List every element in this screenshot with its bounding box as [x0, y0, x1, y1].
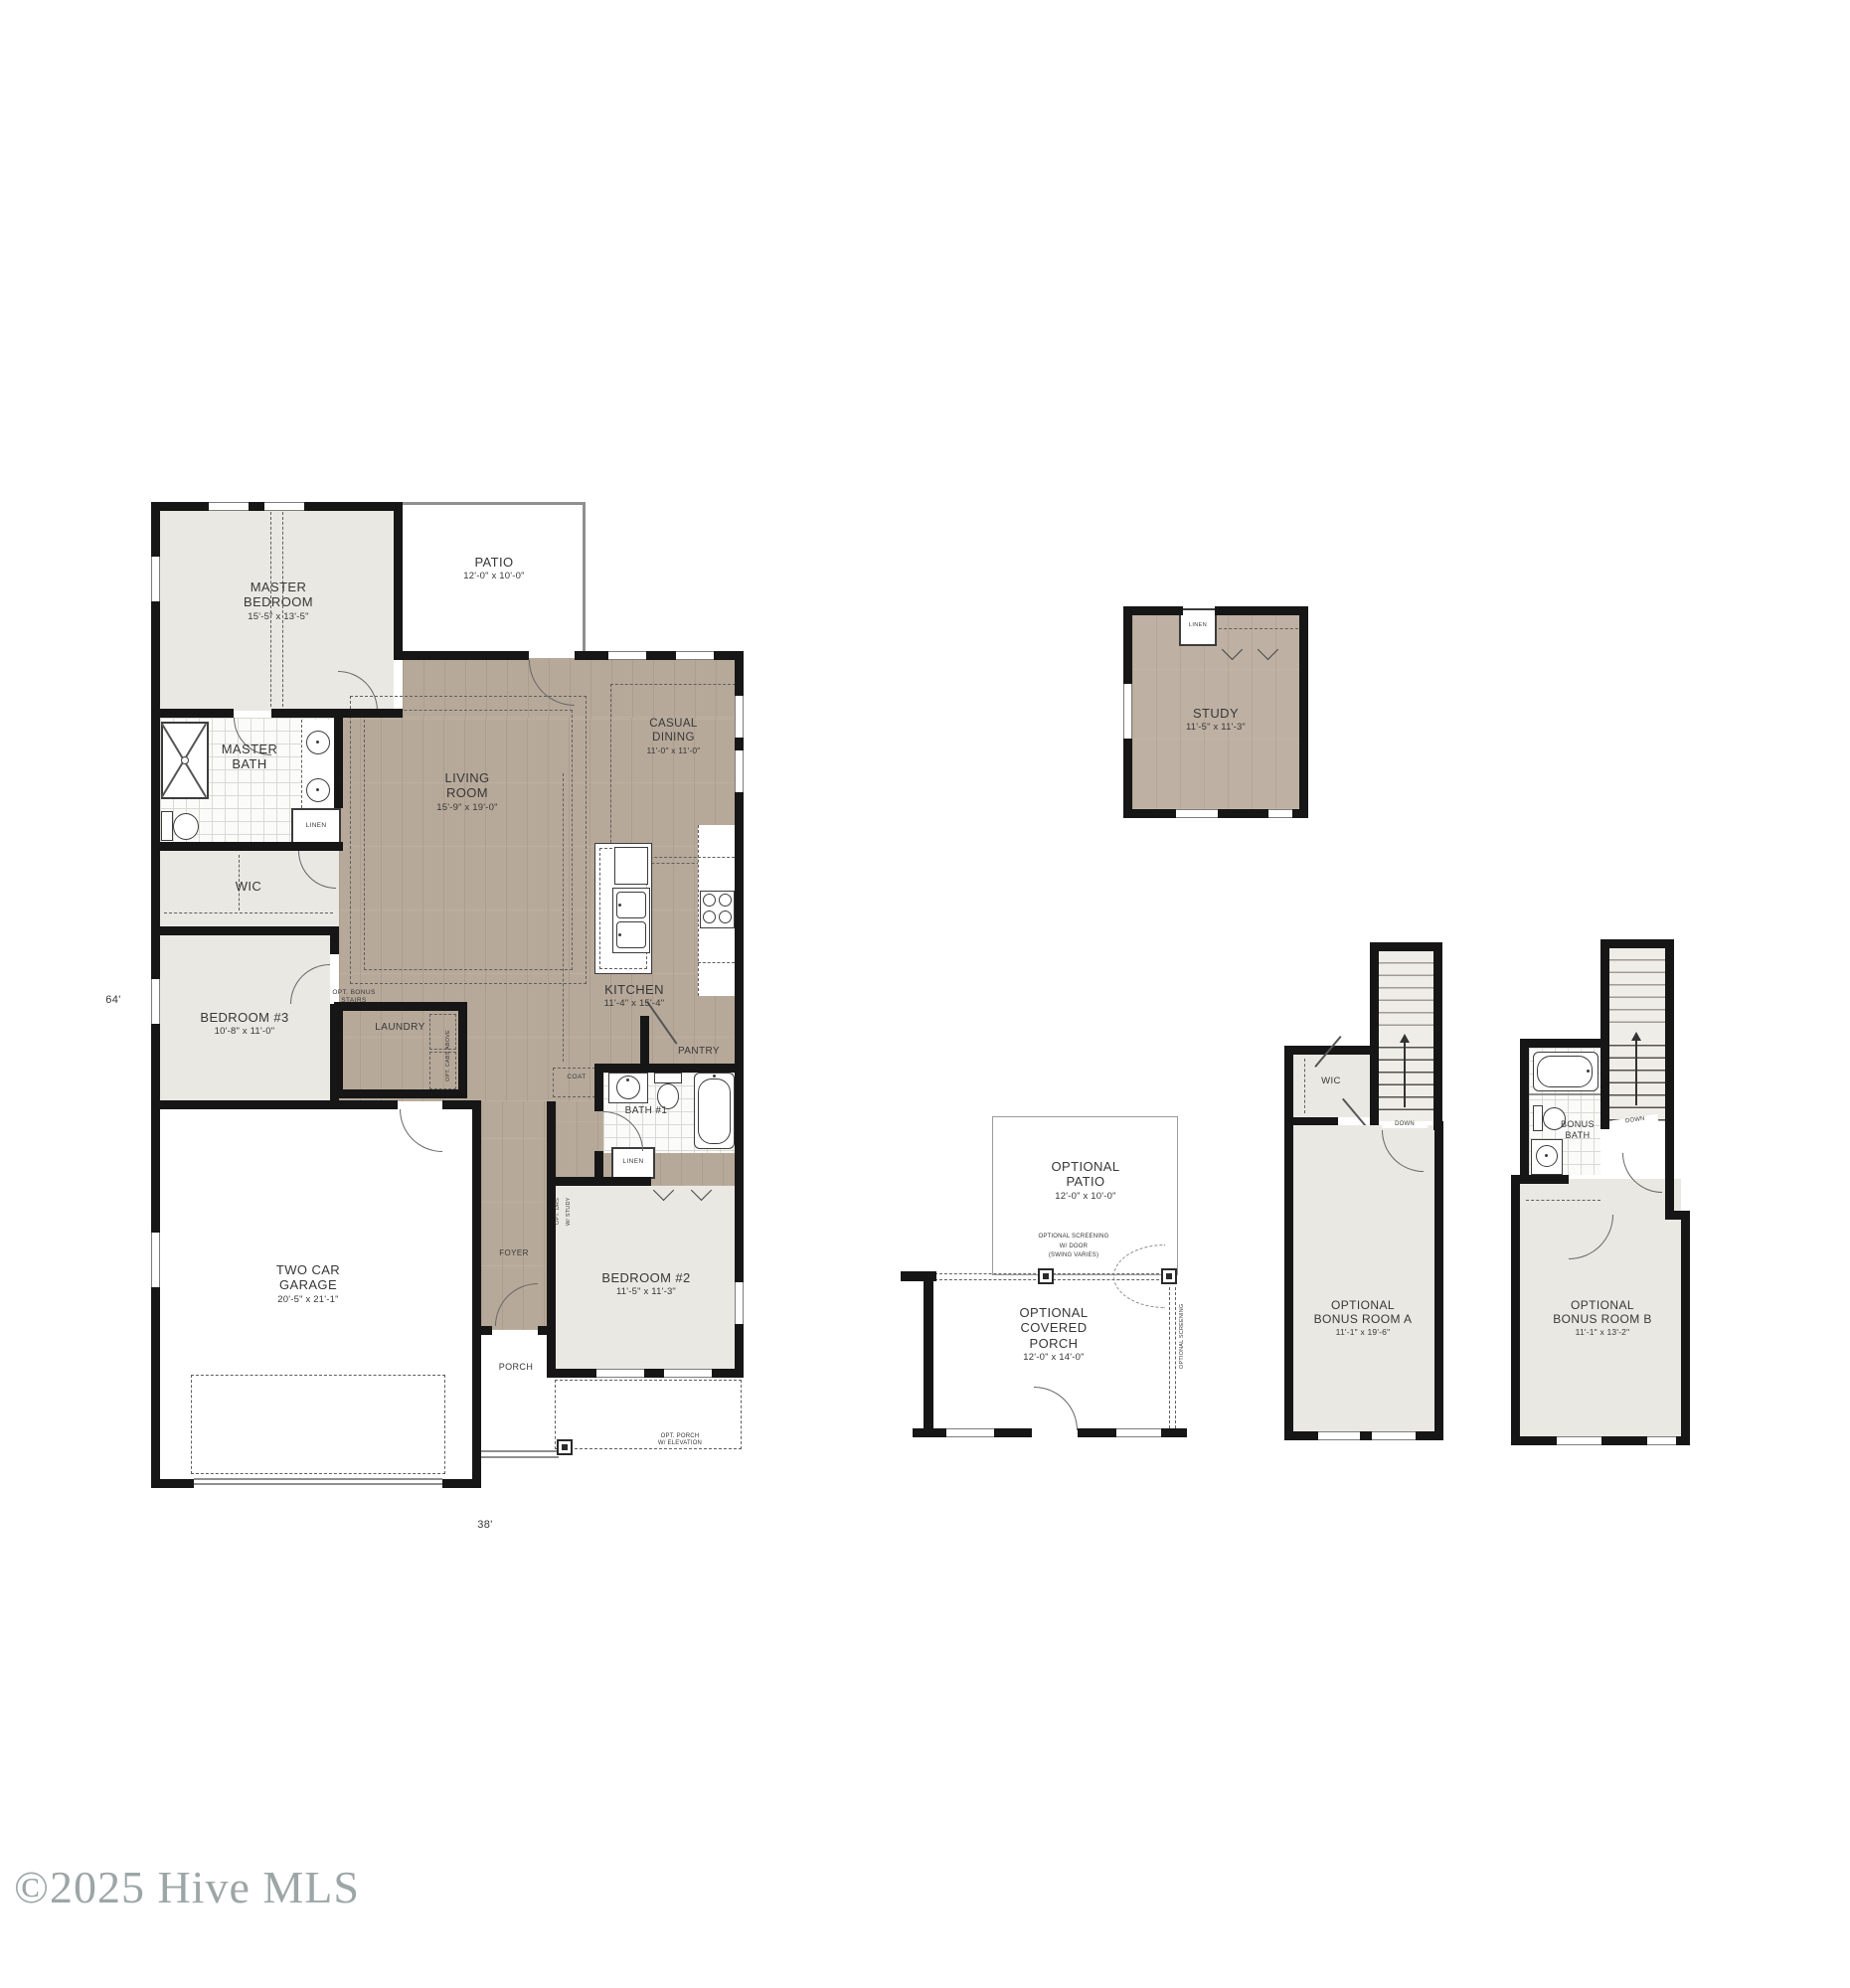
wall [394, 651, 529, 660]
window [209, 502, 249, 511]
window [608, 651, 646, 660]
patio-edge [583, 502, 586, 656]
label-garage: TWO CAR GARAGE 20'-5" x 21'-1" [224, 1262, 393, 1305]
wall [442, 1479, 481, 1488]
wall [151, 1479, 194, 1488]
porch-step [481, 1450, 559, 1452]
wall [594, 1064, 603, 1111]
wall [640, 1016, 649, 1064]
window [1557, 1436, 1601, 1445]
window [735, 1282, 744, 1324]
counter-divider [698, 857, 735, 858]
window [735, 750, 744, 792]
label-linen-master: LINEN [293, 822, 339, 830]
wall [594, 1064, 744, 1073]
window [1268, 809, 1292, 818]
study-ceiling-line [1219, 628, 1298, 629]
window [151, 557, 160, 601]
wall [1600, 939, 1609, 1129]
wall [736, 1177, 744, 1186]
tub-basin [1537, 1056, 1593, 1087]
dimension-depth: 64' [91, 994, 135, 1007]
wall [271, 709, 403, 718]
wall [1161, 1428, 1187, 1437]
stairs [1609, 948, 1665, 1034]
label-wic: WIC [194, 879, 303, 894]
tub-faucet [1587, 1070, 1590, 1073]
screening-line-side [1169, 1287, 1170, 1428]
counter-edge [698, 825, 699, 996]
wall [1434, 1121, 1443, 1440]
wall [334, 1002, 343, 1098]
door-swing-porch [1034, 1387, 1078, 1430]
wall [1681, 1211, 1690, 1445]
window [1647, 1436, 1676, 1445]
living-room-tray-inner [364, 710, 573, 970]
floor-plan-sheet: MASTER BEDROOM 15'-5" x 13'-5" PATIO 12'… [0, 0, 1850, 1988]
window [1123, 684, 1132, 739]
wall [1284, 1121, 1293, 1440]
wall [1360, 1431, 1372, 1440]
wall [1511, 1436, 1557, 1445]
label-opt-cabs-above: OPT. CABS ABOVE [445, 1020, 457, 1091]
dimension-width: 38' [463, 1519, 507, 1532]
label-porch: PORCH [482, 1362, 550, 1373]
stairs-arrow-head [1400, 1034, 1410, 1043]
porch-step [481, 1456, 559, 1458]
wall [1370, 942, 1379, 1131]
wall [1520, 1039, 1609, 1048]
wall [1284, 1431, 1318, 1440]
stairs-arrow [1635, 1040, 1637, 1105]
wall [1511, 1175, 1520, 1445]
label-study-linen: LINEN [1179, 622, 1217, 628]
label-bonus-room-b: OPTIONAL BONUS ROOM B 11'-1" x 13'-2" [1528, 1298, 1677, 1337]
label-laundry: LAUNDRY [353, 1022, 447, 1034]
window [735, 696, 744, 738]
shower-drain [181, 756, 189, 764]
stairs [1379, 951, 1433, 1036]
stove-burner [703, 911, 716, 923]
wall [1078, 1428, 1116, 1437]
tub-wall-line [1529, 1093, 1600, 1095]
wall [151, 709, 234, 718]
stairs-arrow-head [1631, 1032, 1641, 1041]
tub-basin [698, 1078, 731, 1144]
stove-burner [703, 894, 716, 907]
wall [1123, 606, 1183, 615]
toilet-tank [1533, 1105, 1543, 1131]
wall [1299, 606, 1308, 818]
label-optional-patio: OPTIONAL PATIO 12'-0" x 10'-0" [1002, 1159, 1169, 1202]
wall [1433, 1121, 1443, 1130]
wall [1433, 942, 1442, 1131]
stairs-arrow [1404, 1042, 1406, 1107]
wall [547, 1369, 596, 1378]
label-bonus-room-a: OPTIONAL BONUS ROOM A 11'-1" x 19'-6" [1291, 1298, 1434, 1337]
window [1116, 1428, 1161, 1437]
wall [472, 1100, 481, 1488]
faucet-dot [1545, 1154, 1548, 1157]
window [946, 1428, 994, 1437]
wall [151, 926, 339, 935]
label-bedroom2-option-note: W/ STUDY [566, 1175, 576, 1248]
wall [594, 1151, 603, 1186]
wall [1676, 1436, 1690, 1445]
wall [151, 1100, 398, 1109]
faucet-dot [618, 904, 621, 907]
label-kitchen: KITCHEN 11'-4" x 15'-4" [575, 982, 694, 1010]
window [1176, 809, 1218, 818]
window [264, 502, 304, 511]
label-opt-porch-note: OPT. PORCH W/ ELEVATION [638, 1433, 722, 1447]
wall [330, 926, 339, 954]
window [1372, 1431, 1416, 1440]
faucet-dot [626, 1078, 629, 1081]
label-bedroom2-option-note: OPT. DRS [555, 1175, 565, 1248]
wall [151, 502, 209, 511]
wall [1215, 606, 1308, 615]
kitchen-living-divider [563, 773, 564, 1062]
stairs [1609, 1034, 1665, 1121]
wic-shelf-line [164, 912, 333, 913]
window [596, 1369, 644, 1378]
window [1318, 1431, 1360, 1440]
label-bonus-a-down: DOWN [1382, 1121, 1428, 1128]
label-casual-dining: CASUAL DINING 11'-0" x 11'-0" [621, 718, 726, 755]
wall [1601, 1436, 1647, 1445]
wall [644, 1369, 664, 1378]
room-bonus-a [1293, 1125, 1434, 1431]
label-screening-note: OPTIONAL SCREENING W/ DOOR (SWING VARIES… [1012, 1233, 1135, 1261]
stove-burner [719, 894, 732, 907]
wall [1416, 1431, 1443, 1440]
tub-faucet [713, 1075, 716, 1077]
garage-door-line [194, 1478, 442, 1480]
garage-slab-outline [191, 1375, 445, 1474]
wall [994, 1428, 1032, 1437]
label-coat: COAT [553, 1074, 600, 1081]
patio-edge [403, 502, 586, 505]
wall [249, 502, 264, 511]
wall [1370, 942, 1442, 951]
wall [913, 1428, 946, 1437]
label-study: STUDY 11'-5" x 11'-3" [1141, 706, 1290, 734]
faucet-dot [316, 741, 319, 744]
screen-post [1038, 1268, 1054, 1284]
toilet-tank [654, 1073, 682, 1083]
window [676, 651, 714, 660]
label-bonus-a-wic: WIC [1300, 1076, 1362, 1086]
label-linen-hall: LINEN [612, 1158, 654, 1166]
wall [394, 502, 403, 660]
window [664, 1369, 712, 1378]
label-master-bath: MASTER BATH [194, 742, 305, 772]
wall [304, 502, 403, 511]
wall [334, 718, 343, 808]
wall [924, 1271, 933, 1437]
label-bedroom3: BEDROOM #3 10'-8" x 11'-0" [159, 1010, 330, 1038]
porch-column [557, 1439, 573, 1455]
label-bonus-bath: BONUS BATH [1549, 1119, 1606, 1140]
wall [646, 651, 676, 660]
screening-line-side [1175, 1287, 1176, 1428]
label-bath1: BATH #1 [606, 1105, 686, 1117]
wall [575, 651, 608, 660]
wall [1665, 1129, 1674, 1215]
label-master-bedroom: MASTER BEDROOM 15'-5" x 13'-5" [189, 580, 368, 622]
label-patio: PATIO 12'-0" x 10'-0" [411, 555, 578, 582]
toilet-tank [161, 811, 173, 841]
faucet-dot [316, 788, 319, 791]
vestibule-line [1526, 1200, 1600, 1201]
toilet-bowl [173, 813, 199, 840]
label-screening-side: OPTIONAL SCREENING [1179, 1288, 1191, 1384]
room-porch [481, 1335, 547, 1448]
window [151, 1233, 160, 1287]
garage-door-line [194, 1483, 442, 1485]
wall [1600, 939, 1674, 948]
counter-divider [698, 962, 735, 963]
wall [712, 1369, 744, 1378]
wall [151, 842, 343, 851]
island-cabinet [614, 847, 648, 885]
label-optional-covered-porch: OPTIONAL COVERED PORCH 12'-0" x 14'-0" [992, 1305, 1115, 1363]
label-pantry: PANTRY [654, 1046, 744, 1058]
label-living-room: LIVING ROOM 15'-9" x 19'-0" [398, 770, 537, 813]
label-opt-bonus-stairs: OPT. BONUS STAIRS [322, 989, 386, 1004]
stove-burner [719, 911, 732, 923]
mls-watermark: ©2025 Hive MLS [14, 1861, 360, 1913]
faucet-dot [618, 933, 621, 936]
label-bedroom2: BEDROOM #2 11'-5" x 11'-3" [562, 1270, 731, 1298]
wall [1665, 939, 1674, 1129]
wall [481, 1326, 492, 1335]
stairs [1379, 1036, 1433, 1121]
wall [1520, 1039, 1529, 1184]
coat-closet-outline [553, 1068, 600, 1097]
wall [458, 1002, 467, 1098]
label-foyer: FOYER [483, 1248, 545, 1257]
